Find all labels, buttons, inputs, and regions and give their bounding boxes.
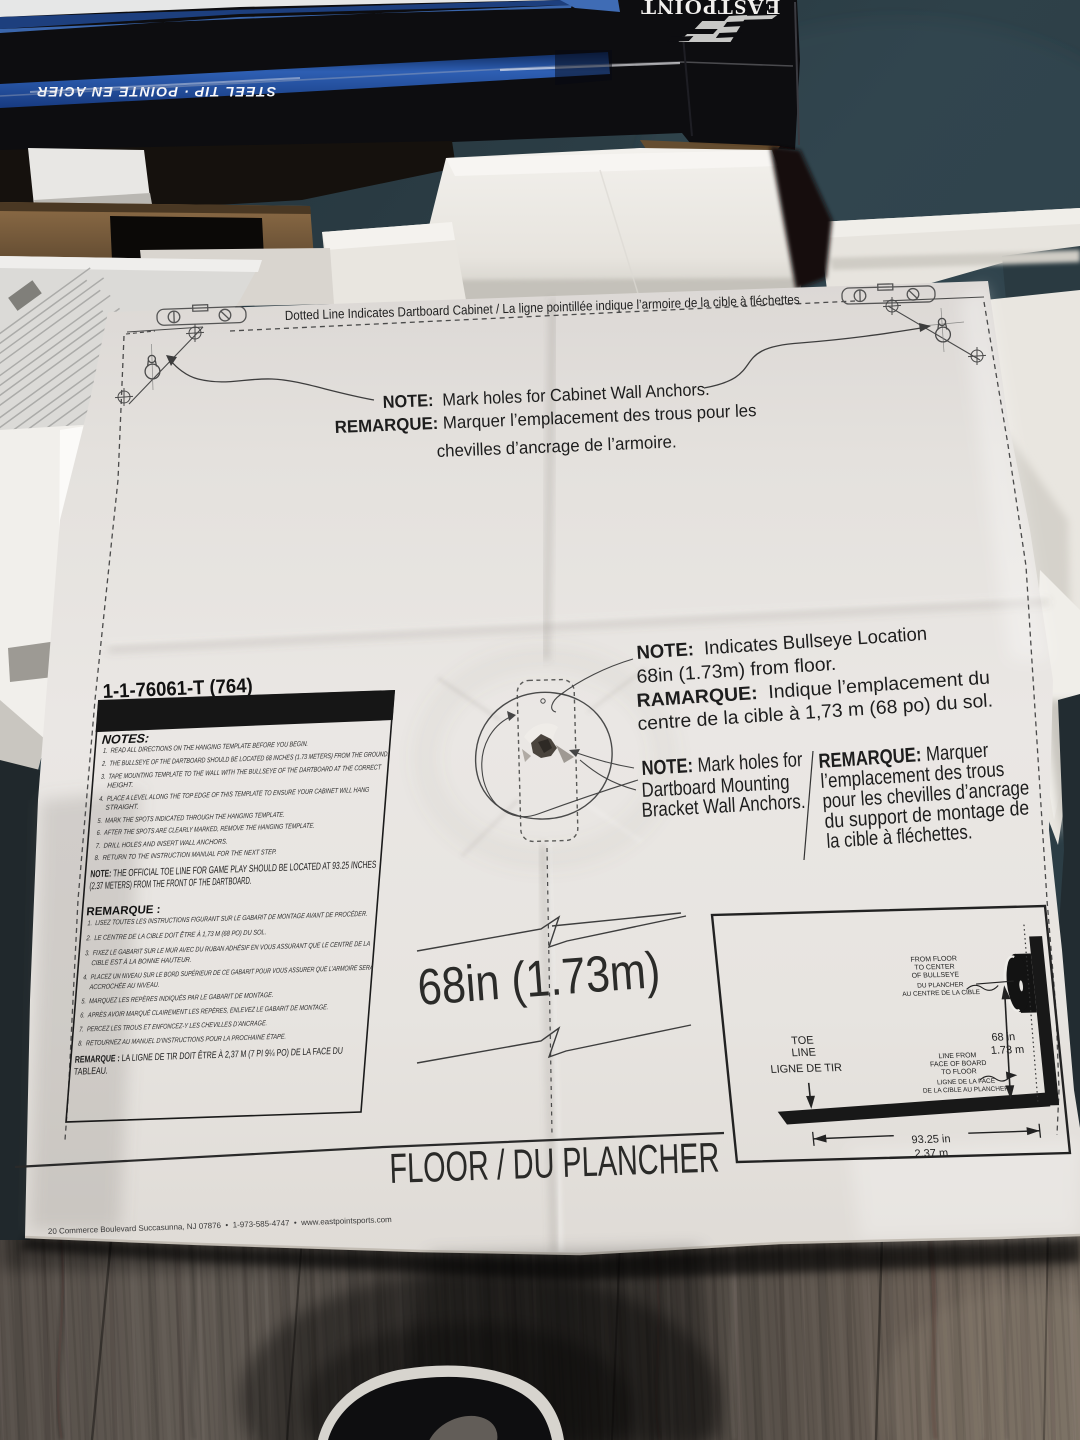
svg-text:TABLEAU.: TABLEAU. — [73, 1066, 108, 1078]
svg-text:REMARQUE :: REMARQUE : — [86, 904, 161, 919]
svg-text:LINE FROM: LINE FROM — [938, 1052, 977, 1060]
svg-text:HEIGHT.: HEIGHT. — [107, 782, 134, 790]
svg-text:2.37 m: 2.37 m — [914, 1147, 949, 1160]
svg-text:93.25 in: 93.25 in — [911, 1133, 951, 1146]
svg-text:TO FLOOR: TO FLOOR — [941, 1068, 977, 1076]
svg-text:DU PLANCHER: DU PLANCHER — [917, 981, 964, 989]
svg-text:FACE OF BOARD: FACE OF BOARD — [930, 1060, 987, 1069]
svg-text:STRAIGHT.: STRAIGHT. — [105, 804, 139, 812]
svg-text:LINE: LINE — [791, 1047, 816, 1060]
svg-text:TOE: TOE — [791, 1035, 814, 1048]
svg-text:FROM FLOOR: FROM FLOOR — [910, 956, 957, 964]
svg-text:LIGNE DE TIR: LIGNE DE TIR — [770, 1062, 843, 1076]
svg-text:68 in: 68 in — [991, 1031, 1016, 1044]
svg-text:NOTES:: NOTES: — [101, 731, 149, 747]
svg-text:TO CENTER: TO CENTER — [914, 964, 955, 972]
svg-text:OF BULLSEYE: OF BULLSEYE — [911, 971, 960, 979]
svg-text:1.73 m: 1.73 m — [990, 1044, 1025, 1057]
